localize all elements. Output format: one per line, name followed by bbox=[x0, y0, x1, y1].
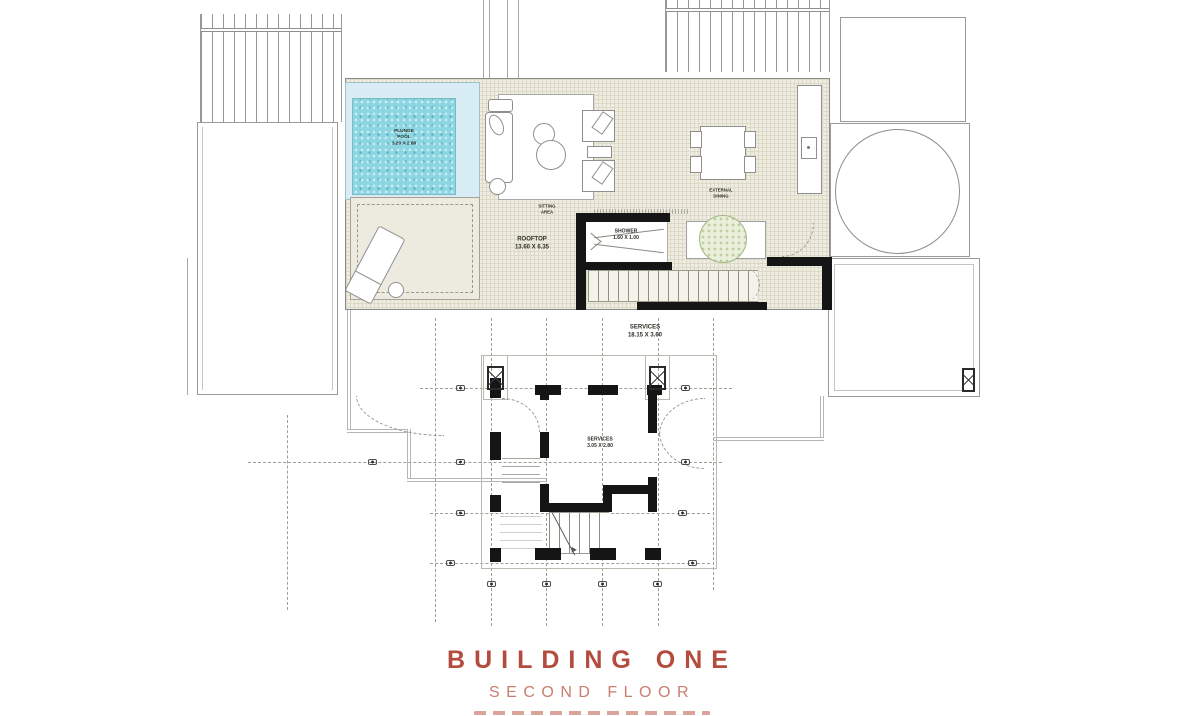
floor-plan-canvas: PLUNGE POOL 3.20 X 2.80 SITTING AREA ROO… bbox=[0, 0, 1184, 716]
roof-line bbox=[483, 0, 484, 78]
building-title: BUILDING ONE bbox=[0, 646, 1184, 675]
dining-chair bbox=[690, 156, 702, 173]
wall-segment bbox=[540, 388, 549, 400]
plunge-pool-label: PLUNGE POOL 3.20 X 2.80 bbox=[377, 128, 431, 146]
pergola-louvers-right bbox=[665, 0, 830, 72]
rooftop-label: ROOFTOP 13.60 X 6.35 bbox=[500, 235, 564, 250]
services-strip-label: SERVICES 18.15 X 3.60 bbox=[613, 323, 677, 338]
column-x bbox=[487, 366, 504, 390]
wall-segment bbox=[586, 262, 672, 270]
left-terrace-room bbox=[197, 122, 338, 395]
coffee-table-large bbox=[536, 140, 566, 170]
louver-rail bbox=[666, 8, 829, 12]
side-table bbox=[587, 146, 612, 158]
wall-segment bbox=[590, 548, 616, 560]
side-ball-table bbox=[388, 282, 404, 298]
roof-line bbox=[489, 0, 490, 78]
survey-marker bbox=[446, 560, 455, 566]
sofa-headrest bbox=[488, 99, 513, 112]
wall-segment bbox=[490, 432, 501, 460]
dining-table bbox=[700, 126, 746, 180]
wall-segment bbox=[586, 213, 670, 222]
sink-drain bbox=[807, 146, 810, 149]
survey-marker bbox=[678, 510, 687, 516]
floor-subtitle: SECOND FLOOR bbox=[0, 684, 1184, 702]
wall-segment bbox=[576, 213, 586, 310]
ghost-outline bbox=[347, 310, 351, 432]
survey-marker bbox=[368, 459, 377, 465]
survey-marker bbox=[487, 581, 496, 587]
external-dining-label: EXTERNAL DINING bbox=[696, 188, 746, 199]
survey-marker bbox=[653, 581, 662, 587]
shower-label: SHOWER 1.60 X 1.00 bbox=[597, 228, 655, 241]
survey-marker bbox=[456, 385, 465, 391]
survey-marker bbox=[688, 560, 697, 566]
column-x-right-room bbox=[962, 368, 975, 392]
sink bbox=[801, 137, 817, 159]
survey-marker bbox=[456, 459, 465, 465]
pouf bbox=[489, 178, 506, 195]
survey-marker bbox=[598, 581, 607, 587]
wall-segment bbox=[535, 548, 561, 560]
wall-segment bbox=[540, 432, 549, 458]
dining-chair bbox=[744, 131, 756, 148]
lounger-fold-line bbox=[355, 271, 380, 285]
circular-feature bbox=[835, 129, 960, 254]
services-room-label: SERVICES 3.05 X 2.80 bbox=[571, 436, 629, 449]
wall-segment bbox=[648, 390, 657, 433]
pergola-louvers-left bbox=[200, 14, 342, 122]
survey-marker bbox=[681, 385, 690, 391]
cropped-bottom-text bbox=[474, 711, 710, 715]
ghost-outline bbox=[714, 437, 824, 441]
right-lower-room-inner-wall bbox=[834, 264, 974, 391]
sitting-area-label: SITTING AREA bbox=[522, 204, 572, 215]
ghost-outline bbox=[407, 429, 411, 481]
wall-segment bbox=[645, 548, 661, 560]
stair-flight-faint bbox=[500, 515, 542, 549]
left-terrace-inner-wall bbox=[202, 127, 333, 390]
wall-segment bbox=[603, 485, 655, 494]
wall-segment bbox=[588, 385, 618, 395]
louver-rail bbox=[201, 28, 341, 32]
wall-segment bbox=[490, 495, 501, 512]
roof-line bbox=[507, 0, 508, 78]
stair-curve-dashed bbox=[728, 268, 760, 302]
grid-line bbox=[287, 415, 288, 610]
roof-line bbox=[518, 0, 519, 78]
dining-chair bbox=[690, 131, 702, 148]
left-faint-line bbox=[187, 258, 188, 395]
right-roof-box bbox=[840, 17, 966, 122]
right-lower-room bbox=[828, 258, 980, 397]
survey-marker bbox=[456, 510, 465, 516]
dining-chair bbox=[744, 156, 756, 173]
column-x bbox=[649, 366, 666, 390]
wall-segment bbox=[490, 548, 501, 562]
wall-segment bbox=[637, 302, 767, 310]
stair-flight-small bbox=[502, 453, 540, 483]
grid-line bbox=[435, 318, 436, 622]
wall-segment bbox=[648, 477, 657, 512]
survey-marker bbox=[681, 459, 690, 465]
plunge-pool bbox=[352, 98, 456, 195]
wall-segment bbox=[822, 257, 832, 310]
survey-marker bbox=[542, 581, 551, 587]
ghost-outline bbox=[820, 396, 824, 440]
planter-tree bbox=[699, 215, 747, 263]
